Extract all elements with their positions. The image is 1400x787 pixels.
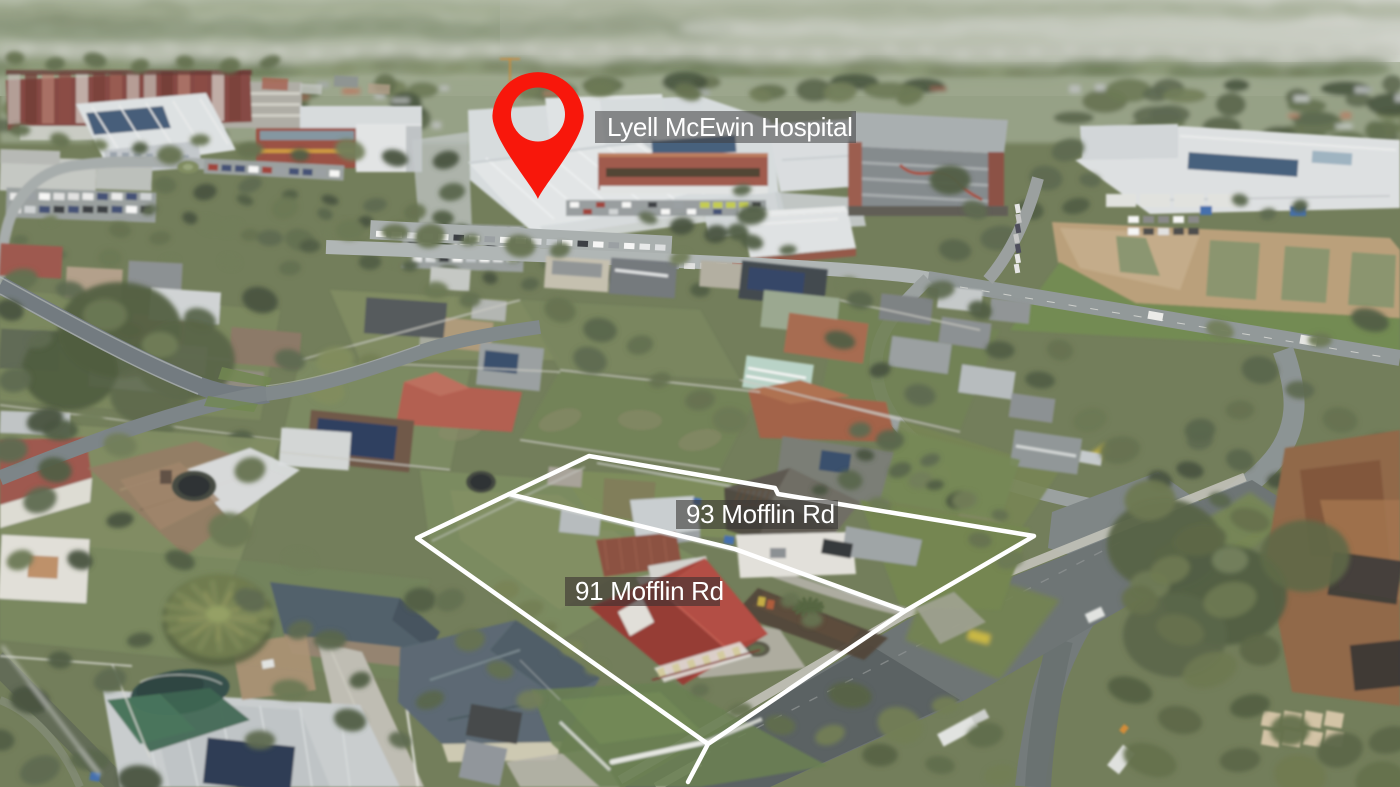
svg-text:93 Mofflin Rd: 93 Mofflin Rd bbox=[686, 499, 835, 529]
svg-text:Lyell McEwin Hospital: Lyell McEwin Hospital bbox=[607, 112, 853, 142]
svg-text:91 Mofflin Rd: 91 Mofflin Rd bbox=[575, 576, 724, 606]
